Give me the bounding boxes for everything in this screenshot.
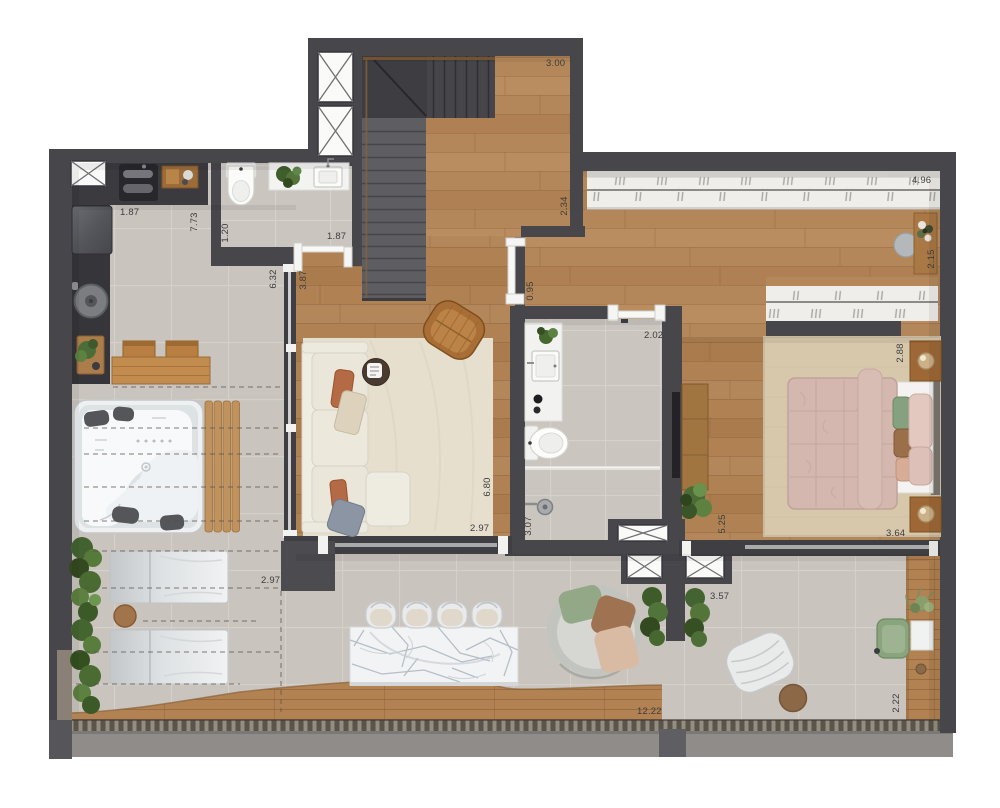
svg-text:3.00: 3.00 <box>546 58 565 69</box>
svg-text:6.80: 6.80 <box>482 477 493 496</box>
svg-text:1.20: 1.20 <box>220 223 231 242</box>
svg-text:4.96: 4.96 <box>912 175 931 186</box>
svg-text:2.97: 2.97 <box>470 523 489 534</box>
svg-text:1.87: 1.87 <box>327 231 346 242</box>
svg-text:2.97: 2.97 <box>261 575 280 586</box>
svg-text:3.57: 3.57 <box>710 591 729 602</box>
svg-text:3.87: 3.87 <box>298 270 309 289</box>
svg-text:3.07: 3.07 <box>523 516 534 535</box>
svg-text:1.87: 1.87 <box>120 207 139 218</box>
svg-text:12.22: 12.22 <box>637 706 662 717</box>
svg-text:2.02: 2.02 <box>644 330 663 341</box>
svg-text:2.34: 2.34 <box>559 196 570 215</box>
svg-text:5.25: 5.25 <box>717 514 728 533</box>
svg-text:7.73: 7.73 <box>189 212 200 231</box>
svg-text:0.95: 0.95 <box>525 281 536 300</box>
svg-text:3.64: 3.64 <box>886 528 905 539</box>
svg-text:2.88: 2.88 <box>895 343 906 362</box>
svg-text:2.22: 2.22 <box>891 693 902 712</box>
svg-text:6.32: 6.32 <box>268 269 279 288</box>
svg-text:2.15: 2.15 <box>926 249 937 268</box>
